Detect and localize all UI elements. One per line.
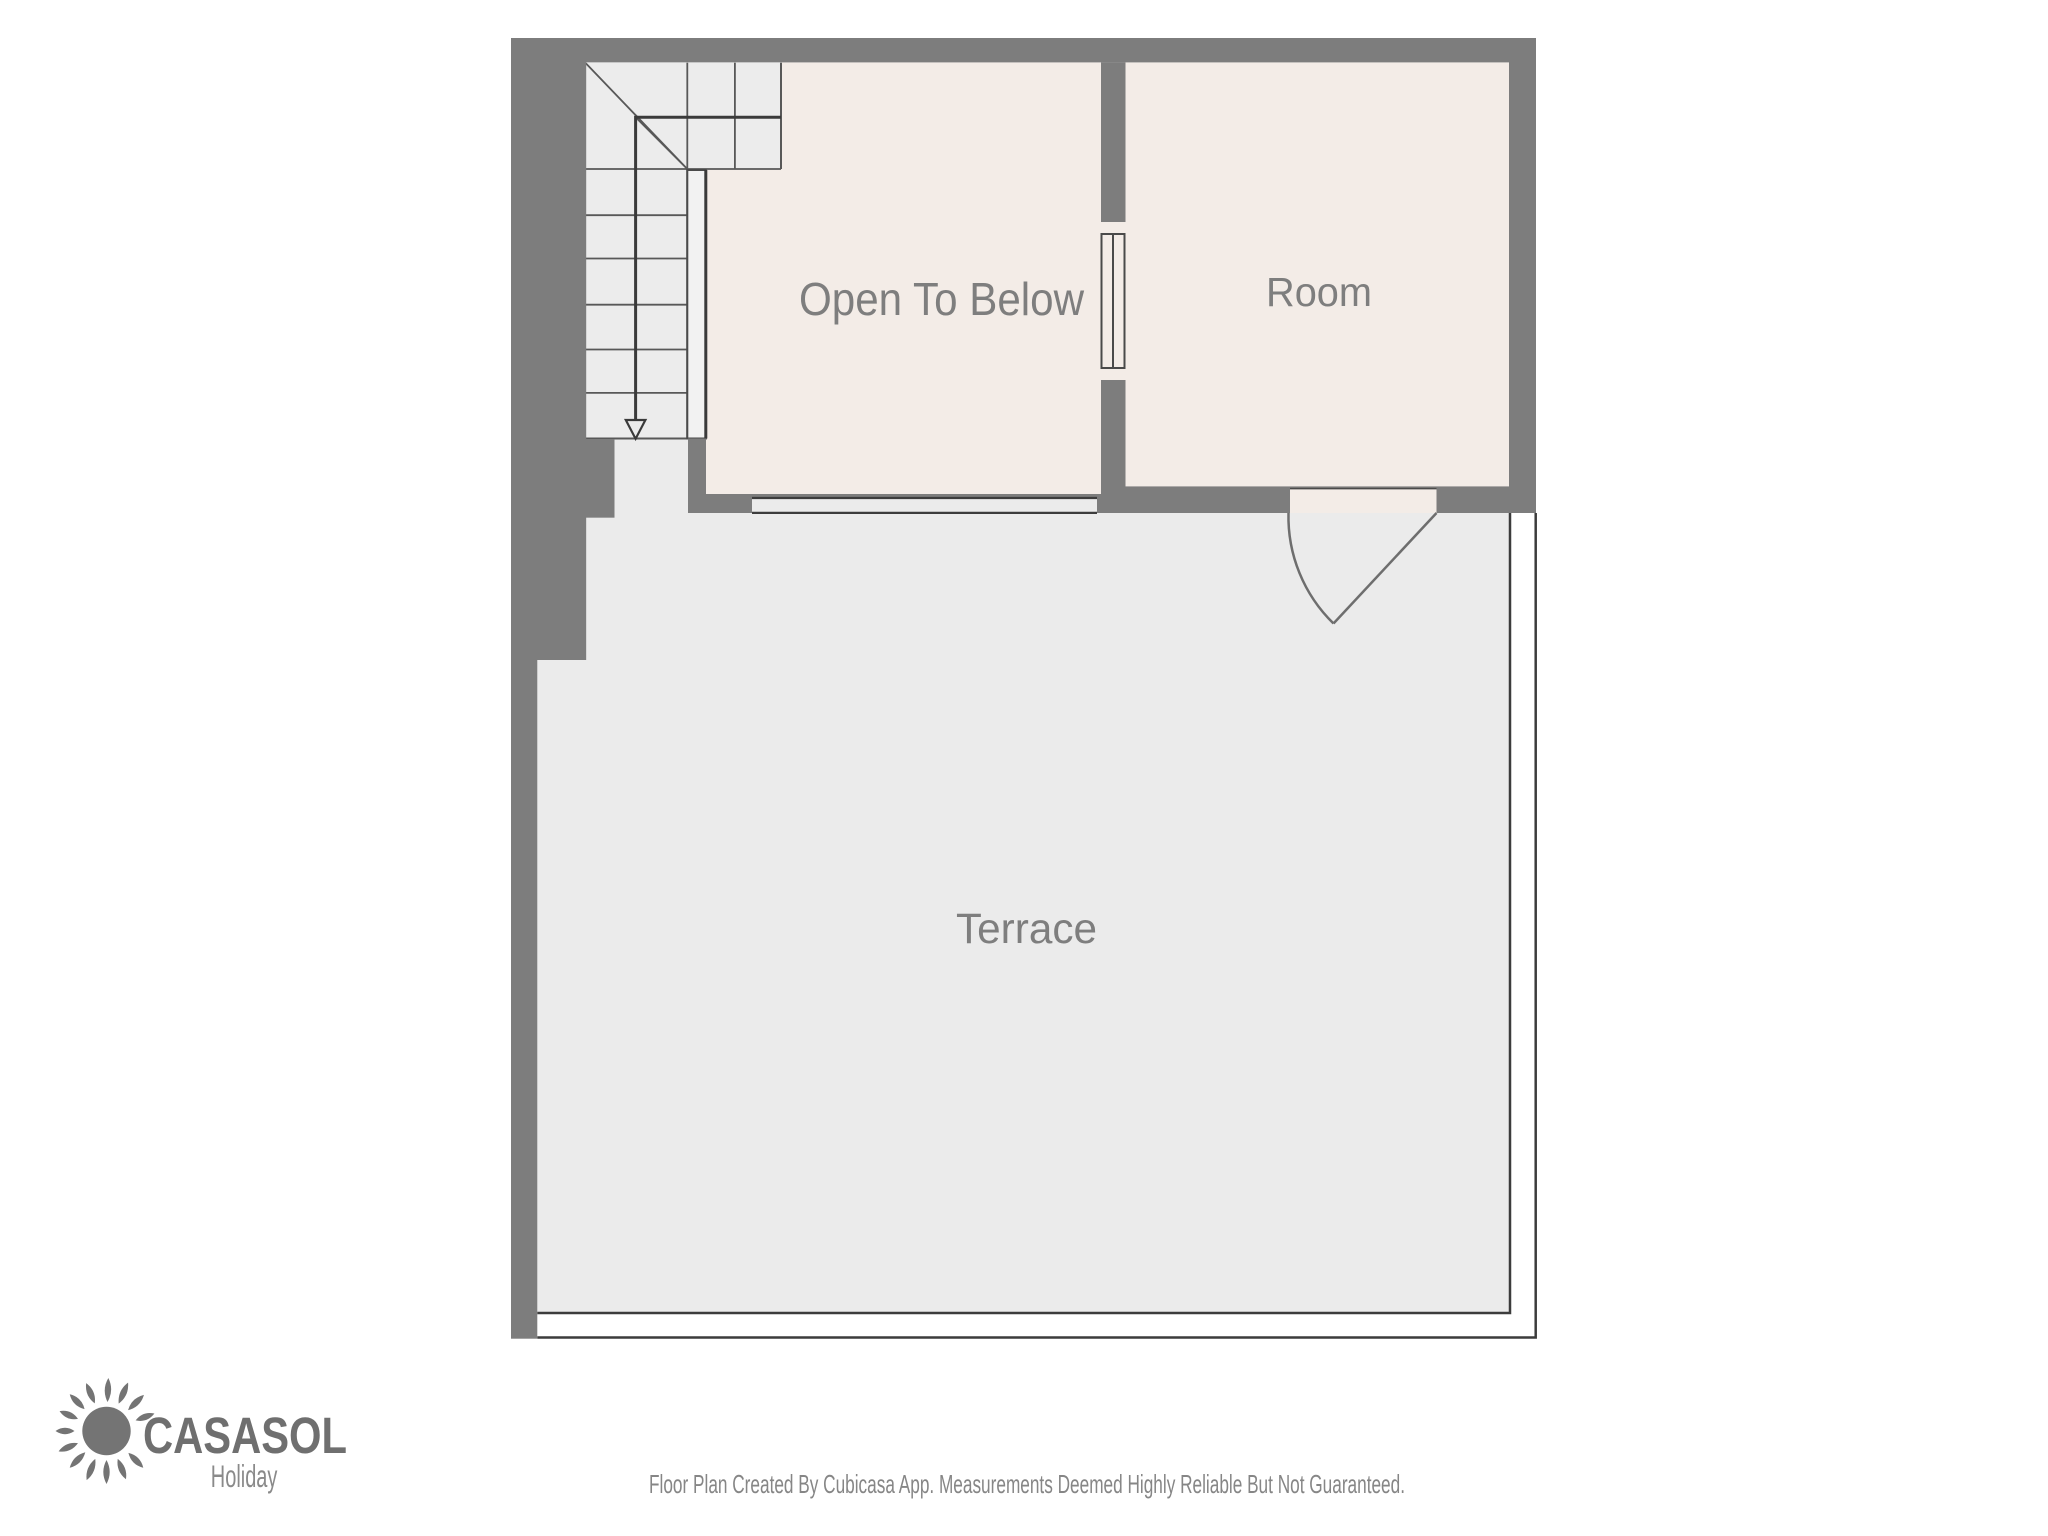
svg-text:Floor Plan Created By Cubicasa: Floor Plan Created By Cubicasa App. Meas…: [649, 1471, 1405, 1499]
svg-text:Holiday: Holiday: [211, 1458, 278, 1494]
svg-text:Open To Below: Open To Below: [799, 273, 1084, 325]
svg-text:Terrace: Terrace: [956, 905, 1097, 953]
svg-text:Room: Room: [1266, 269, 1372, 315]
svg-text:CASASOL: CASASOL: [143, 1406, 347, 1464]
